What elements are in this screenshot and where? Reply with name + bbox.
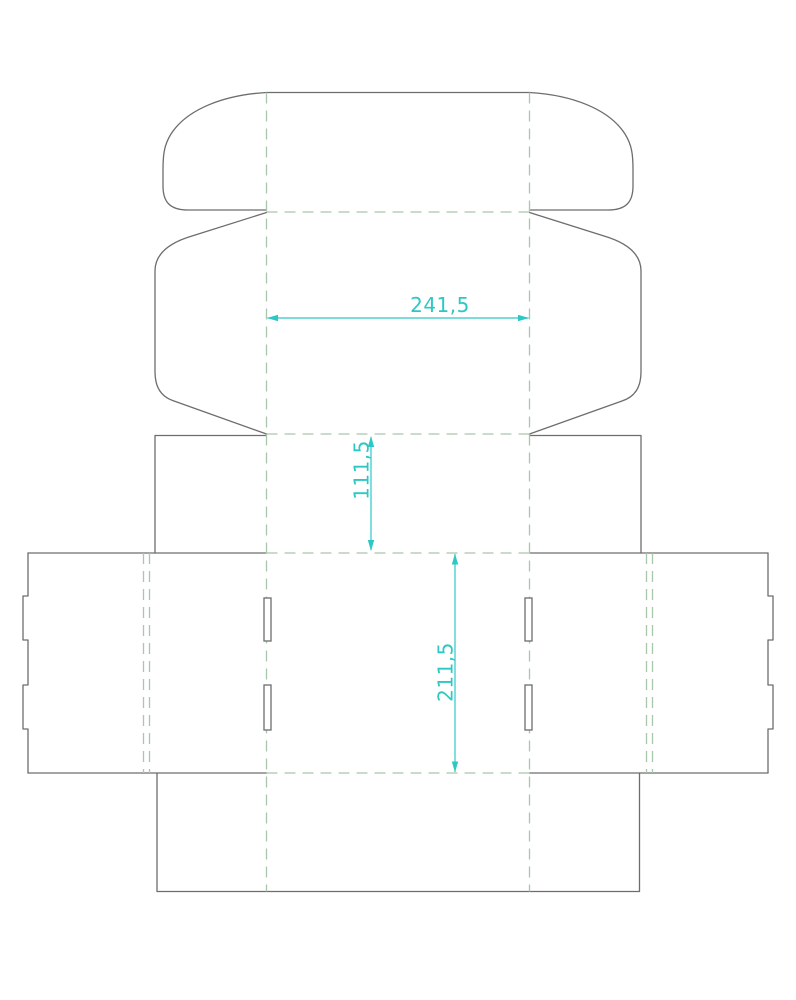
- dimension-length: 211,5: [434, 554, 459, 773]
- dimensions: 241,5 111,5 211,5: [267, 293, 529, 773]
- dimension-depth-value: 111,5: [350, 440, 374, 500]
- dimension-width-arrow-left: [267, 315, 278, 321]
- dimension-length-arrow-bottom: [452, 762, 458, 773]
- front-flap-outline: [157, 773, 640, 892]
- dieline-drawing: 241,5 111,5 211,5: [0, 0, 796, 1000]
- lock-slot-right-upper: [525, 598, 532, 641]
- dimension-length-value: 211,5: [434, 642, 458, 702]
- dimension-depth: 111,5: [350, 436, 375, 551]
- lid-side-panel-left-outline: [155, 436, 267, 554]
- lid-side-panel-right-outline: [530, 436, 642, 554]
- lock-slots: [264, 598, 532, 730]
- lid-tuck-tab-left-outline: [163, 93, 267, 211]
- dieline-canvas: 241,5 111,5 211,5: [0, 0, 796, 1000]
- side-wing-right-edge-with-lock-tabs: [768, 553, 773, 773]
- dust-flap-left-outline: [155, 213, 267, 435]
- dimension-width: 241,5: [267, 293, 529, 321]
- dimension-depth-arrow-bottom: [368, 540, 374, 551]
- lock-slot-right-lower: [525, 685, 532, 730]
- lock-slot-left-upper: [264, 598, 271, 641]
- lock-slot-left-lower: [264, 685, 271, 730]
- side-wing-left-edge-with-lock-tabs: [23, 553, 28, 773]
- dimension-width-value: 241,5: [410, 293, 470, 317]
- dimension-length-arrow-top: [452, 554, 458, 565]
- fold-lines: [144, 93, 653, 892]
- dust-flap-right-outline: [530, 213, 642, 435]
- dimension-width-arrow-right: [518, 315, 529, 321]
- lid-tuck-tab-right-outline: [530, 93, 634, 211]
